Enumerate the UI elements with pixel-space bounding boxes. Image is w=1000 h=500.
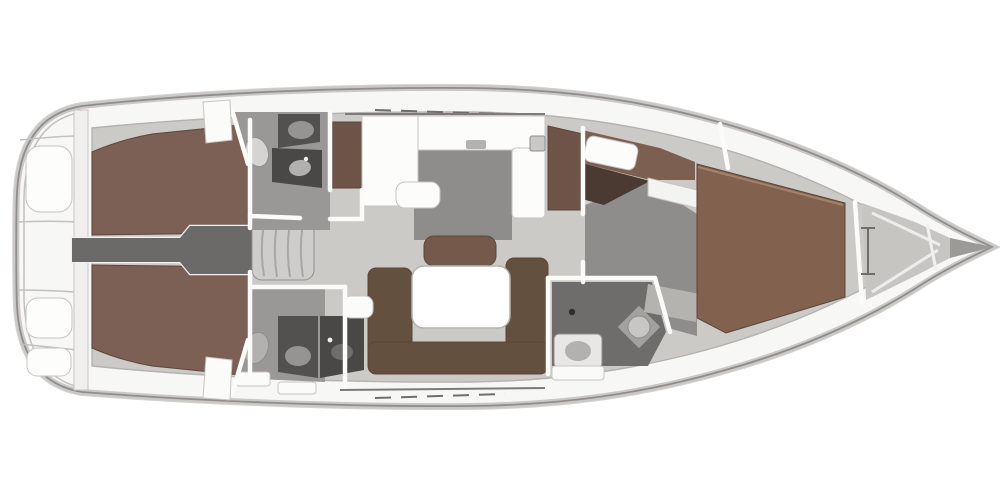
galley-sink <box>466 140 486 149</box>
head-top-faucet <box>304 157 308 161</box>
head-bottom-faucet <box>328 338 333 343</box>
chainplate-post-top <box>203 100 232 143</box>
galley-counter-island <box>396 182 440 208</box>
salon-side-seat <box>343 296 373 318</box>
galley-counter-right <box>512 148 545 218</box>
stern-divider-2 <box>18 221 76 222</box>
salon-bench <box>424 236 496 266</box>
fwd-head-faucet <box>569 309 575 315</box>
head-bottom-sill-1 <box>236 372 270 386</box>
fwd-head-toilet <box>565 341 591 361</box>
head-bottom-shower-tray <box>285 346 311 366</box>
stern-seat-pad-2 <box>26 298 72 338</box>
floor-plan-svg <box>0 0 1000 500</box>
head-bottom-sill-2 <box>278 382 316 394</box>
salon-table <box>412 266 510 328</box>
fwd-head-sink <box>628 316 650 338</box>
fwd-head-sill <box>552 366 604 380</box>
galley-fridge <box>548 126 583 210</box>
chainplate-post-bottom <box>203 357 232 400</box>
stern-seat-pad-1 <box>26 146 72 212</box>
wardrobe-top <box>332 122 362 188</box>
head-top-shower-tray <box>288 121 314 139</box>
sofa-back <box>368 342 548 374</box>
stern-seat-pad-3 <box>27 348 71 376</box>
head-bottom-sink <box>331 344 353 360</box>
galley-stove <box>530 136 545 151</box>
yacht-floor-plan <box>0 0 1000 500</box>
